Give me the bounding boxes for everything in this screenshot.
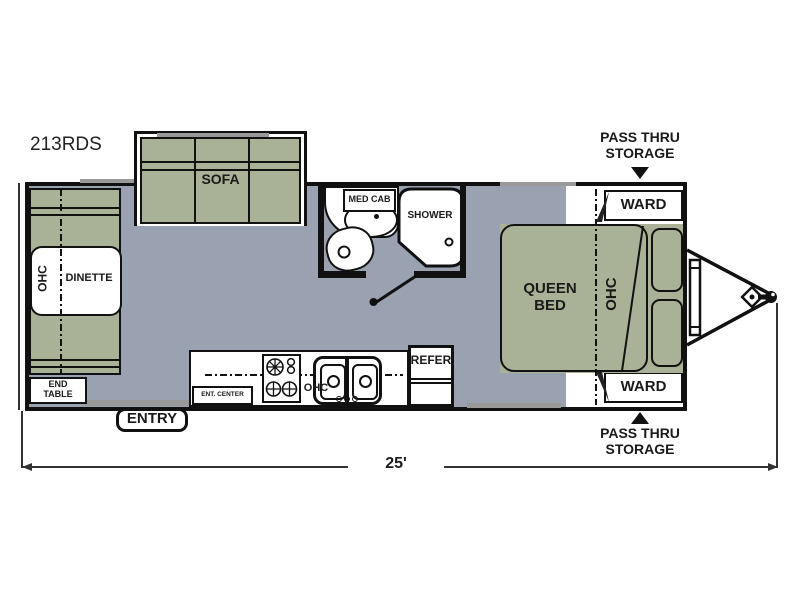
wall-rail-mark [500,182,576,186]
dimension-arrow-left-icon [22,463,32,471]
rear-bumper-line [18,183,20,410]
kitchen-ohc-label: OHC [298,383,334,395]
ent-center-label: ENT. CENTER [192,391,253,398]
pass-thru-arrow-down-icon [631,167,649,179]
wall-rail-mark [467,403,561,408]
stove-icon [262,354,301,403]
dimension-label: 25' [352,455,440,472]
bath-bottom-wall-right [414,271,466,278]
queen-bed-label: QUEEN BED [505,281,595,314]
pass-thru-bottom-line2: STORAGE [575,442,705,457]
dimension-arrow-right-icon [768,463,778,471]
pass-thru-top-line1: PASS THRU [575,130,705,145]
rv-floor-plan: 213RDS PASS THRU STORAGE SOFA OHC DINETT… [0,0,800,600]
dinette-label: DINETTE [60,273,118,285]
bath-left-wall [318,186,324,278]
entry-step-mark [84,400,190,406]
shower-drain-icon [446,239,453,246]
dimension-extension-left [21,411,23,468]
hitch-icon [687,250,777,345]
bedroom-dashline [595,189,597,405]
ward-top-label: WARD [604,197,683,213]
dimension-line-left-segment [22,466,348,468]
dinette-ohc-label: OHC [37,255,50,301]
stove-burners [264,356,298,400]
pass-thru-arrow-up-icon [631,412,649,424]
sofa-label: SOFA [140,172,301,187]
med-cab-label: MED CAB [343,195,396,205]
sink-icon [313,356,382,405]
model-number-label: 213RDS [30,135,102,156]
entry-label: ENTRY [116,411,188,427]
shower-stall [396,186,466,270]
ward-bottom-label: WARD [604,379,683,395]
pass-thru-top-line2: STORAGE [575,146,705,161]
pass-thru-bottom-line1: PASS THRU [575,426,705,441]
bath-right-wall [460,186,466,278]
dimension-extension-right [776,303,778,468]
hitch-ball-icon [765,291,777,303]
bath-bottom-wall-left [318,271,366,278]
wall-rail-mark [80,179,134,183]
bed-pillow [651,299,683,367]
shower-label: SHOWER [400,211,460,222]
end-table-label: END TABLE [29,380,87,399]
bed-pillow [651,228,683,292]
refer-label: REFER [408,354,454,367]
bed-ohc-label: OHC [604,266,620,322]
dimension-line-right-segment [444,466,778,468]
